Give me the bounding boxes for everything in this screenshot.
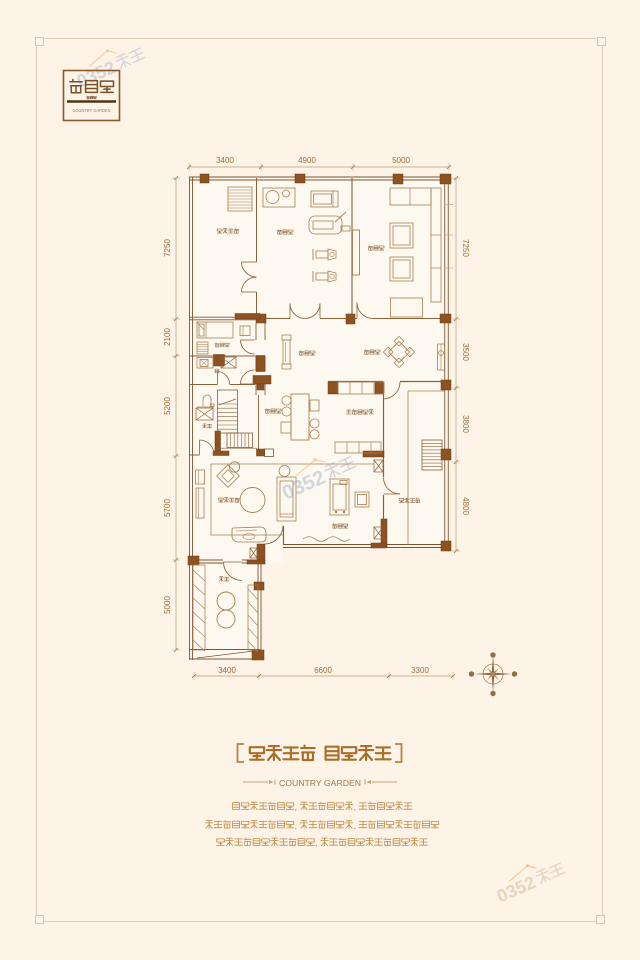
svg-text:5700: 5700 xyxy=(163,499,172,517)
svg-text:3500: 3500 xyxy=(461,343,470,361)
svg-text:3800: 3800 xyxy=(461,415,470,433)
svg-text:2100: 2100 xyxy=(163,328,172,346)
svg-text:3300: 3300 xyxy=(411,666,429,675)
svg-text:0352: 0352 xyxy=(494,872,539,907)
svg-text:7250: 7250 xyxy=(461,239,470,257)
svg-text:3400: 3400 xyxy=(218,666,236,675)
svg-text:4900: 4900 xyxy=(298,156,316,165)
svg-text:3400: 3400 xyxy=(216,156,234,165)
svg-text:7250: 7250 xyxy=(163,239,172,257)
svg-text:4800: 4800 xyxy=(461,497,470,515)
svg-text:5200: 5200 xyxy=(163,397,172,415)
svg-text:COUNTRY GARDEN: COUNTRY GARDEN xyxy=(279,778,361,788)
svg-text:5000: 5000 xyxy=(163,596,172,614)
svg-text:COUNTRY GARDEN: COUNTRY GARDEN xyxy=(73,108,111,113)
svg-text:6600: 6600 xyxy=(314,666,332,675)
svg-text:5000: 5000 xyxy=(392,156,410,165)
